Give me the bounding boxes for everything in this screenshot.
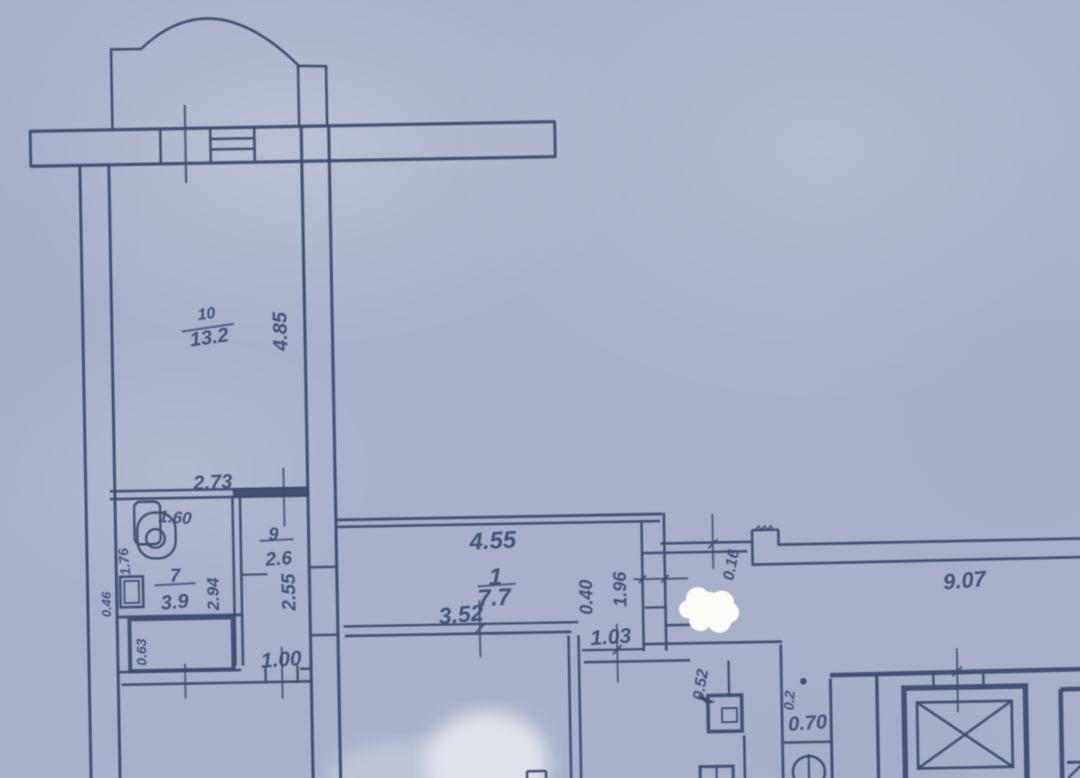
svg-text:1.03: 1.03 [590, 624, 633, 650]
svg-text:2.6: 2.6 [264, 548, 293, 571]
svg-text:0.40: 0.40 [576, 579, 597, 614]
svg-text:9: 9 [268, 524, 278, 544]
svg-text:9.07: 9.07 [942, 566, 989, 595]
svg-text:1.76: 1.76 [115, 547, 134, 576]
svg-text:0.2: 0.2 [780, 690, 797, 711]
svg-text:7: 7 [170, 566, 181, 586]
svg-text:4.85: 4.85 [270, 311, 293, 352]
svg-text:2.73: 2.73 [192, 471, 233, 495]
svg-text:0.63: 0.63 [133, 638, 150, 666]
svg-text:1.00: 1.00 [260, 647, 303, 673]
svg-text:0.46: 0.46 [99, 591, 114, 617]
svg-text:10: 10 [197, 305, 217, 324]
svg-text:4.55: 4.55 [468, 526, 518, 556]
svg-text:1.96: 1.96 [610, 571, 631, 607]
svg-text:2.55: 2.55 [279, 573, 301, 612]
svg-text:2.94: 2.94 [203, 577, 223, 612]
svg-text:3.9: 3.9 [160, 590, 191, 614]
svg-text:0.70: 0.70 [787, 711, 827, 736]
